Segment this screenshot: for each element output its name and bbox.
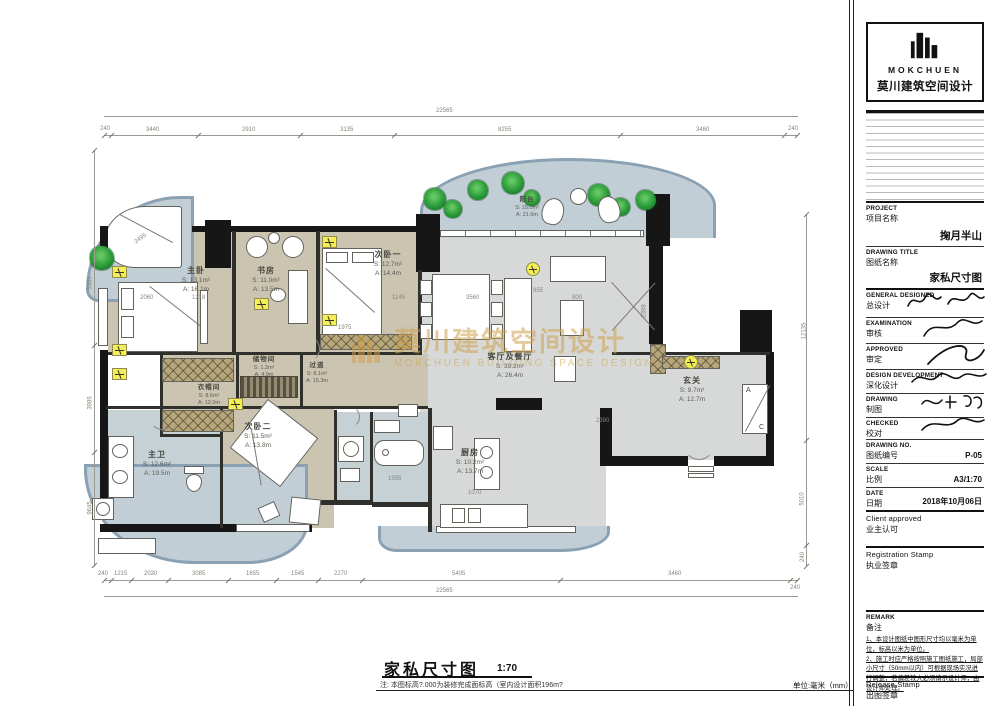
interior-dim: 800 xyxy=(572,295,582,301)
washer-drum xyxy=(343,441,359,457)
plant xyxy=(444,200,462,218)
wall xyxy=(714,456,772,466)
signature xyxy=(916,414,988,436)
dim: 5010 xyxy=(800,492,806,505)
lamp-icon xyxy=(112,344,127,356)
dim: 5385 xyxy=(88,276,94,289)
lamp-icon xyxy=(112,266,127,278)
sign-row-checked: CHECKED 校对 xyxy=(866,418,984,440)
window xyxy=(98,288,108,346)
titleblock-border xyxy=(853,0,854,706)
wall-column xyxy=(205,220,231,268)
signature xyxy=(918,340,988,368)
drawing-title-row: DRAWING TITLE 图纸名称 家私尺寸图 xyxy=(866,247,984,290)
sheet-scale: 1:70 xyxy=(497,663,517,674)
logo-box: MOKCHUEN 莫川建筑空间设计 xyxy=(866,22,984,102)
toilet-bath2 xyxy=(398,404,418,417)
dim: 240 xyxy=(790,585,800,591)
signature xyxy=(908,366,988,390)
dim: 3135 xyxy=(340,127,353,133)
wall xyxy=(740,310,772,354)
plant xyxy=(502,172,524,194)
drawing-no-row: DRAWING NO. 图纸编号 P-05 xyxy=(866,440,984,464)
remark-note-1: 1、本设计图纸中图形尺寸均以毫米为单位，标高以米为单位。 xyxy=(866,635,984,655)
tick xyxy=(795,578,801,584)
dim: 1545 xyxy=(291,571,304,577)
dim: 240 xyxy=(800,552,806,562)
lamp-icon xyxy=(112,368,127,380)
drawing-no-value: P-05 xyxy=(965,451,982,460)
floor-plan: A C 主卧S: 13.1m xyxy=(0,0,855,706)
room-label: 次卧二S: 11.5m²A: 13.8m xyxy=(232,422,284,450)
interior-dim: 1595 xyxy=(388,476,401,482)
plant xyxy=(424,188,446,210)
room-label: 厨房S: 10.2m²A: 13.7m xyxy=(444,448,496,476)
door-arc xyxy=(338,406,360,428)
footer-rule xyxy=(376,690,853,691)
room-label: 储物间S: 1.3m²A: 4.9m xyxy=(238,356,290,380)
dim: 1215 xyxy=(114,571,127,577)
partition xyxy=(232,231,236,352)
partition xyxy=(428,408,432,532)
signature xyxy=(904,286,988,316)
sheet-title-underline xyxy=(382,676,532,678)
dim: 3440 xyxy=(146,127,159,133)
ac-label-c: C xyxy=(759,424,764,431)
lamp-icon xyxy=(322,314,337,326)
basin xyxy=(112,470,128,484)
dim-line xyxy=(104,135,798,136)
dim: 240 xyxy=(98,571,108,577)
basin xyxy=(112,444,128,458)
mokchuen-logo-icon xyxy=(348,328,388,372)
lamp-icon xyxy=(526,262,540,276)
partition xyxy=(160,434,222,437)
dining-chair xyxy=(420,302,432,317)
wall xyxy=(606,456,688,466)
brand-name: MOKCHUEN xyxy=(888,65,962,75)
dim: 5405 xyxy=(452,571,465,577)
window xyxy=(236,524,310,532)
tick xyxy=(92,563,98,569)
bathtub-drain xyxy=(382,449,389,456)
partition xyxy=(372,502,430,507)
dim-line xyxy=(104,580,798,581)
room-label: 次卧一S: 12.7m²A: 14.4m xyxy=(362,250,414,278)
plant xyxy=(468,180,488,200)
sofa-top xyxy=(550,256,606,282)
side-table xyxy=(268,232,280,244)
titleblock-border xyxy=(849,0,850,706)
scale-value: A3/1:70 xyxy=(954,475,982,484)
lounge-chair xyxy=(246,236,268,258)
dim: 9645 xyxy=(88,501,94,514)
interior-dim: 2390 xyxy=(596,418,609,424)
dim: 12135 xyxy=(801,323,807,340)
drawing-title-value: 家私尺寸图 xyxy=(930,270,983,285)
dim: 2910 xyxy=(242,127,255,133)
dim: 1655 xyxy=(246,571,259,577)
dim-overall-top: 22565 xyxy=(436,108,453,114)
registration-stamp-row: Registration Stamp 执业签章 xyxy=(866,548,984,612)
sink-basin xyxy=(468,508,481,523)
project-row: PROJECT 项目名称 掬月半山 xyxy=(866,203,984,247)
plant xyxy=(636,190,656,210)
lounge-chair xyxy=(282,236,304,258)
dim-line xyxy=(104,596,798,597)
interior-dim: 2398 xyxy=(642,304,648,317)
client-approved-row: Client approved 业主认可 xyxy=(866,512,984,548)
dining-chair xyxy=(491,302,503,317)
ac-label-a: A xyxy=(746,387,751,394)
dim: 3460 xyxy=(696,127,709,133)
tick xyxy=(795,133,801,139)
sheet-footnote: 注: 本图标高?.000为装修完成面标高（室内设计面积196m? xyxy=(380,680,563,690)
signature xyxy=(916,390,988,414)
entry-step xyxy=(688,473,714,478)
partition xyxy=(334,410,337,504)
date-row: DATE 日期 2018年10月06日 xyxy=(866,488,984,512)
dim-line xyxy=(94,150,95,566)
lamp-icon xyxy=(322,236,337,248)
lamp-icon xyxy=(254,298,269,310)
desk-bedroom2 xyxy=(289,497,322,526)
brand-name-cn: 莫川建筑空间设计 xyxy=(877,78,973,94)
dim: 3460 xyxy=(668,571,681,577)
pillow xyxy=(326,252,348,263)
dim-line xyxy=(104,116,798,117)
wall-column xyxy=(416,214,440,272)
watermark-cn: 莫川建筑空间设计 xyxy=(394,328,654,358)
dim: 2030 xyxy=(144,571,157,577)
dim: 240 xyxy=(100,126,110,132)
dining-chair xyxy=(491,280,503,295)
mokchuen-logo-icon xyxy=(906,30,944,62)
dim-line xyxy=(806,214,807,566)
door-arc xyxy=(150,406,174,430)
dim-overall-bottom: 22565 xyxy=(436,588,453,594)
sliding-door xyxy=(440,230,644,237)
dining-chair xyxy=(420,280,432,295)
ac-closet: A C xyxy=(742,384,768,434)
dim: 240 xyxy=(788,126,798,132)
fridge xyxy=(433,426,453,450)
ruled-notes-area xyxy=(866,110,984,203)
dim: 2270 xyxy=(334,571,347,577)
balcony-top xyxy=(420,158,716,238)
date-value: 2018年10月06日 xyxy=(922,496,982,507)
signature xyxy=(918,314,988,342)
room-label: 主卧S: 13.1m²A: 16.1m xyxy=(168,266,224,294)
release-stamp-row: Release Stamp 出图签章 xyxy=(866,678,984,708)
interior-dim: 3560 xyxy=(466,295,479,301)
lamp-icon xyxy=(684,355,698,369)
watermark-en: MOKCHUEN BUILDING SPACE DESIGN xyxy=(394,358,654,369)
sink-basin xyxy=(452,508,465,523)
scale-row: SCALE 比例 A3/1:70 xyxy=(866,464,984,488)
door-arc xyxy=(294,336,320,362)
pillow xyxy=(121,316,134,338)
door-arc xyxy=(684,430,714,460)
entry-step xyxy=(688,466,714,472)
interior-dim: 955 xyxy=(533,288,543,294)
interior-dim: 1070 xyxy=(468,490,481,496)
title-block: MOKCHUEN 莫川建筑空间设计 PROJECT 项目名称 掬月半山 DRAW… xyxy=(856,0,999,706)
room-label: 书房S: 11.0m²A: 13.5m xyxy=(240,266,292,294)
interior-dim: 1218 xyxy=(192,295,205,301)
dim: 3085 xyxy=(192,571,205,577)
project-name: 掬月半山 xyxy=(940,228,982,243)
watermark: 莫川建筑空间设计 MOKCHUEN BUILDING SPACE DESIGN xyxy=(348,328,678,394)
room-label: 衣帽间S: 8.6m²A: 12.0m xyxy=(182,384,236,408)
dim: 8255 xyxy=(498,127,511,133)
wall xyxy=(496,398,542,410)
tick xyxy=(804,564,810,570)
dim: 3985 xyxy=(88,396,94,409)
pillow xyxy=(121,288,134,310)
remark-row: REMARK 备注 1、本设计图纸中图形尺寸均以毫米为单位，标高以米为单位。 2… xyxy=(866,612,984,678)
wall xyxy=(600,408,612,466)
closet-wardrobe xyxy=(162,358,234,382)
interior-dim: 2060 xyxy=(140,295,153,301)
balcony-table xyxy=(570,188,587,205)
room-label: 阳台S: 15.0m²A: 21.6m xyxy=(503,196,551,220)
toilet-tank xyxy=(184,466,204,474)
washer-drum xyxy=(96,502,110,516)
wall xyxy=(100,350,108,510)
partition xyxy=(370,412,373,504)
vanity-bath2 xyxy=(374,420,400,433)
interior-dim: 1145 xyxy=(392,295,405,301)
balcony-cabinet xyxy=(98,538,156,554)
basin-cabinet xyxy=(340,468,360,482)
room-label: 主卫S: 12.6m²A: 19.5m xyxy=(132,450,182,478)
room-label: 过道S: 8.1m²A: 15.3m xyxy=(294,362,340,386)
